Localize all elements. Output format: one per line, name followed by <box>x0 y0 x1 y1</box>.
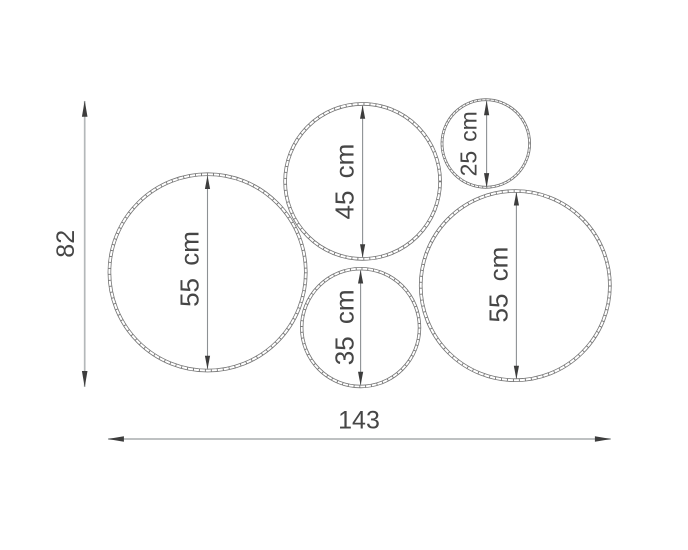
svg-text:25 cm: 25 cm <box>456 111 482 176</box>
svg-text:45 cm: 45 cm <box>329 144 359 220</box>
svg-text:35 cm: 35 cm <box>329 289 359 365</box>
svg-text:82: 82 <box>52 230 80 258</box>
svg-text:143: 143 <box>338 406 380 434</box>
svg-text:55 cm: 55 cm <box>483 247 513 323</box>
svg-text:55 cm: 55 cm <box>175 231 205 307</box>
